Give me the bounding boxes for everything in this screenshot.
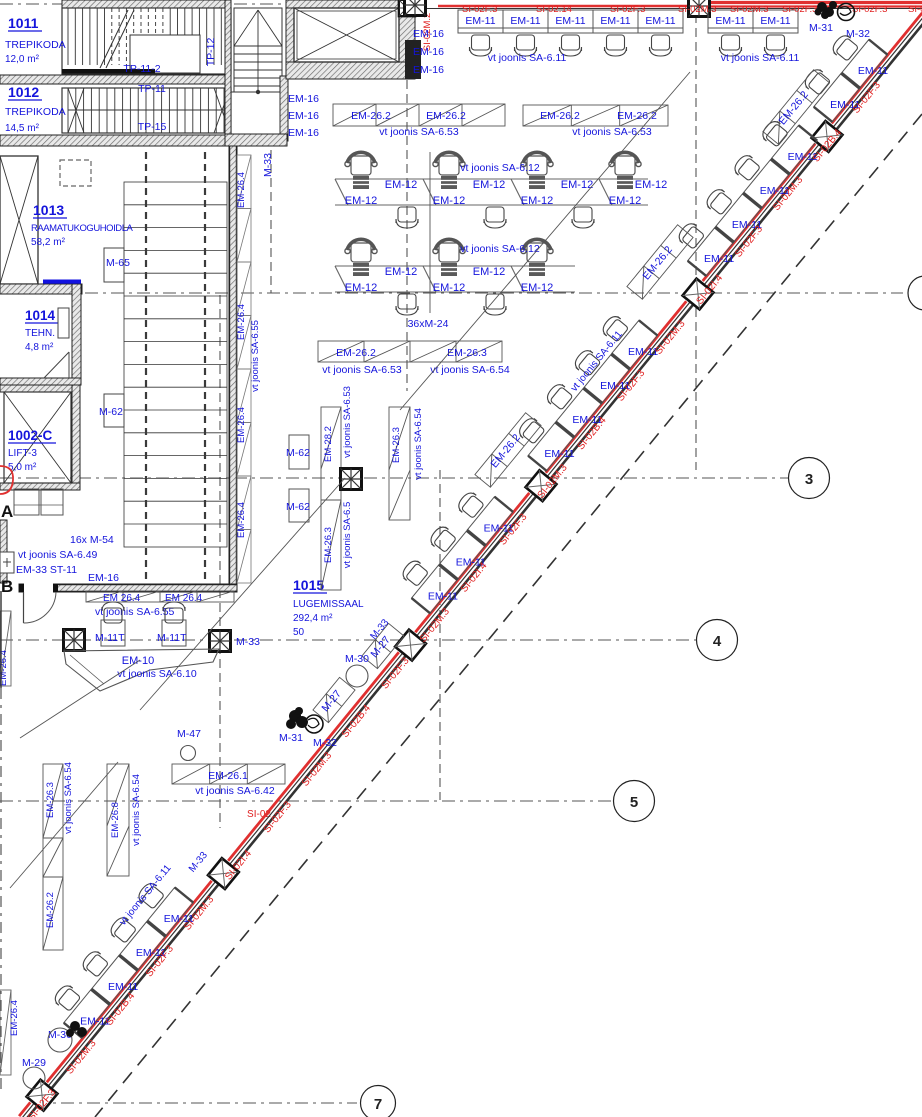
svg-text:1012: 1012 xyxy=(8,84,39,100)
svg-text:EM-26.2: EM-26.2 xyxy=(336,347,376,359)
svg-text:M-31: M-31 xyxy=(279,732,303,744)
svg-text:A: A xyxy=(1,502,13,521)
svg-text:M-33: M-33 xyxy=(236,636,260,648)
svg-text:M-65: M-65 xyxy=(106,257,130,269)
svg-text:EM-12: EM-12 xyxy=(473,179,505,191)
svg-text:EM-12: EM-12 xyxy=(521,282,553,294)
svg-text:vt joonis SA-6.54: vt joonis SA-6.54 xyxy=(131,774,142,846)
svg-text:EM-12: EM-12 xyxy=(473,266,505,278)
svg-text:RAAMATUKOGUHOIDLA: RAAMATUKOGUHOIDLA xyxy=(31,223,134,234)
svg-text:EM-26.3: EM-26.3 xyxy=(45,782,56,818)
svg-text:vt joonis SA-6.53: vt joonis SA-6.53 xyxy=(379,126,459,138)
svg-text:EM-26.1: EM-26.1 xyxy=(208,770,248,782)
svg-text:1014: 1014 xyxy=(25,308,56,323)
svg-text:vt joonis SA-6.53: vt joonis SA-6.53 xyxy=(322,364,402,376)
svg-text:EM-11: EM-11 xyxy=(465,15,495,27)
svg-text:EM-28.2: EM-28.2 xyxy=(323,426,334,462)
svg-text:EM-16: EM-16 xyxy=(288,127,319,139)
svg-text:EM-26.4: EM-26.4 xyxy=(236,502,247,538)
svg-text:EM-11: EM-11 xyxy=(715,15,745,27)
svg-text:EM-26.3: EM-26.3 xyxy=(323,527,334,563)
svg-text:M-62: M-62 xyxy=(99,406,123,418)
svg-text:4,8 m²: 4,8 m² xyxy=(25,342,54,353)
svg-text:1011: 1011 xyxy=(8,15,39,31)
svg-text:EM-11: EM-11 xyxy=(510,15,540,27)
svg-text:EM-11: EM-11 xyxy=(600,15,630,27)
svg-text:EM-11: EM-11 xyxy=(858,65,888,77)
svg-text:EM-26.4: EM-26.4 xyxy=(236,172,247,208)
svg-text:vt joonis SA-6.53: vt joonis SA-6.53 xyxy=(342,386,353,458)
svg-text:M-47: M-47 xyxy=(177,728,201,740)
svg-text:vt joonis SA-6.54: vt joonis SA-6.54 xyxy=(430,364,510,376)
svg-text:TREPIKODA: TREPIKODA xyxy=(5,106,66,118)
svg-text:TP-15: TP-15 xyxy=(138,121,167,133)
svg-text:36xM-24: 36xM-24 xyxy=(408,318,449,330)
svg-text:EM-16: EM-16 xyxy=(413,46,444,58)
svg-text:EM-11: EM-11 xyxy=(108,981,138,993)
svg-text:EM-16: EM-16 xyxy=(413,28,444,40)
svg-text:14,5 m²: 14,5 m² xyxy=(5,123,40,134)
svg-text:EM-12: EM-12 xyxy=(561,179,593,191)
svg-text:EM-33 ST-11: EM-33 ST-11 xyxy=(16,564,77,576)
svg-text:EM-26.2: EM-26.2 xyxy=(540,110,580,122)
svg-text:vt joonis SA-6.54: vt joonis SA-6.54 xyxy=(413,408,424,480)
svg-text:EM-12: EM-12 xyxy=(609,195,641,207)
svg-text:EM-11: EM-11 xyxy=(544,448,574,460)
svg-text:EM-11: EM-11 xyxy=(555,15,585,27)
svg-text:LUGEMISSAAL: LUGEMISSAAL xyxy=(293,599,364,610)
svg-text:SI-02F.3: SI-02F.3 xyxy=(852,4,887,15)
svg-text:EM-26.2: EM-26.2 xyxy=(45,892,56,928)
svg-text:EM-12: EM-12 xyxy=(345,282,377,294)
svg-text:TP-11-2: TP-11-2 xyxy=(123,63,160,75)
svg-text:EM-12: EM-12 xyxy=(433,195,465,207)
svg-text:EM-12: EM-12 xyxy=(521,195,553,207)
svg-text:M-31: M-31 xyxy=(809,22,833,34)
svg-text:SI-02F.3: SI-02F.3 xyxy=(610,4,645,15)
svg-text:TP-11: TP-11 xyxy=(138,83,166,95)
svg-text:TEHN.: TEHN. xyxy=(25,328,55,339)
svg-text:EM-26.4: EM-26.4 xyxy=(9,1000,20,1036)
svg-text:vt joonis SA-6.53: vt joonis SA-6.53 xyxy=(572,126,652,138)
svg-text:EM-12: EM-12 xyxy=(345,195,377,207)
svg-text:EM-12: EM-12 xyxy=(385,266,417,278)
svg-text:SI-02M.3: SI-02M.3 xyxy=(730,4,769,15)
svg-text:EM-26.2: EM-26.2 xyxy=(351,110,391,122)
svg-text:vt joonis SA-6.10: vt joonis SA-6.10 xyxy=(117,668,197,680)
svg-text:3: 3 xyxy=(805,471,813,488)
svg-text:16x M-54: 16x M-54 xyxy=(70,534,114,546)
svg-text:TP-12: TP-12 xyxy=(205,38,217,67)
svg-text:EM-26.4: EM-26.4 xyxy=(236,407,247,443)
svg-text:M-33: M-33 xyxy=(262,153,274,177)
svg-text:EM-16: EM-16 xyxy=(288,93,319,105)
svg-text:50: 50 xyxy=(293,627,305,638)
svg-text:EM-12: EM-12 xyxy=(385,179,417,191)
svg-text:vt joonis SA-6.55: vt joonis SA-6.55 xyxy=(250,320,261,392)
svg-text:EM-16: EM-16 xyxy=(88,572,119,584)
svg-text:vt joonis SA-6.12: vt joonis SA-6.12 xyxy=(460,243,540,255)
svg-text:1015: 1015 xyxy=(293,577,324,593)
svg-text:M-32: M-32 xyxy=(313,737,337,749)
svg-text:vt joonis SA-6.5: vt joonis SA-6.5 xyxy=(342,502,353,569)
svg-text:1013: 1013 xyxy=(33,202,64,218)
svg-text:EM-12: EM-12 xyxy=(433,282,465,294)
svg-text:EM-26.2: EM-26.2 xyxy=(426,110,466,122)
svg-text:EM-12: EM-12 xyxy=(635,179,667,191)
svg-text:M-62: M-62 xyxy=(286,501,310,513)
svg-text:vt joonis SA-6.42: vt joonis SA-6.42 xyxy=(195,785,275,797)
svg-text:SI-02.14: SI-02.14 xyxy=(536,4,572,15)
svg-text:EM-26.2: EM-26.2 xyxy=(617,110,657,122)
svg-text:SI-02F.3: SI-02F.3 xyxy=(462,4,497,15)
svg-text:7: 7 xyxy=(374,1096,382,1113)
svg-text:EM-11: EM-11 xyxy=(704,253,734,265)
svg-text:EM-26.3: EM-26.3 xyxy=(391,427,402,463)
svg-text:vt joonis SA-6.49: vt joonis SA-6.49 xyxy=(18,549,98,561)
svg-text:vt joonis SA-6.54: vt joonis SA-6.54 xyxy=(63,762,74,834)
svg-text:vt joonis SA-6.11: vt joonis SA-6.11 xyxy=(721,52,800,64)
svg-text:EM-16: EM-16 xyxy=(413,64,444,76)
svg-text:M-32: M-32 xyxy=(846,28,870,40)
svg-text:SI-02C: SI-02C xyxy=(908,4,922,15)
svg-text:M-11T: M-11T xyxy=(95,632,125,644)
svg-text:SI-02M.3: SI-02M.3 xyxy=(678,4,717,15)
svg-text:vt joonis SA-6.12: vt joonis SA-6.12 xyxy=(460,162,540,174)
svg-text:SI-02F.3: SI-02F.3 xyxy=(782,4,817,15)
svg-text:M-30: M-30 xyxy=(345,653,369,665)
svg-text:EM-26.8: EM-26.8 xyxy=(110,802,121,838)
svg-text:M-62: M-62 xyxy=(286,447,310,459)
svg-text:5: 5 xyxy=(630,794,638,811)
svg-text:58,2 m²: 58,2 m² xyxy=(31,237,66,248)
svg-text:EM-11: EM-11 xyxy=(428,591,458,603)
svg-text:EM-26.4: EM-26.4 xyxy=(236,304,247,340)
svg-text:EM-11: EM-11 xyxy=(628,346,658,358)
svg-text:vt joonis SA-6.11: vt joonis SA-6.11 xyxy=(488,52,567,64)
svg-text:1002-C: 1002-C xyxy=(8,428,53,443)
svg-text:292,4 m²: 292,4 m² xyxy=(293,613,333,624)
svg-text:4: 4 xyxy=(713,633,722,650)
svg-text:EM-26.3: EM-26.3 xyxy=(447,347,487,359)
svg-text:B: B xyxy=(1,577,13,596)
svg-text:EM-11: EM-11 xyxy=(760,15,790,27)
svg-text:12,0 m²: 12,0 m² xyxy=(5,54,40,65)
svg-text:LIFT-3: LIFT-3 xyxy=(8,448,37,459)
svg-text:EM-11: EM-11 xyxy=(645,15,675,27)
svg-text:TREPIKODA: TREPIKODA xyxy=(5,39,66,51)
svg-text:M-11T: M-11T xyxy=(157,632,187,644)
svg-text:EM-16: EM-16 xyxy=(288,110,319,122)
